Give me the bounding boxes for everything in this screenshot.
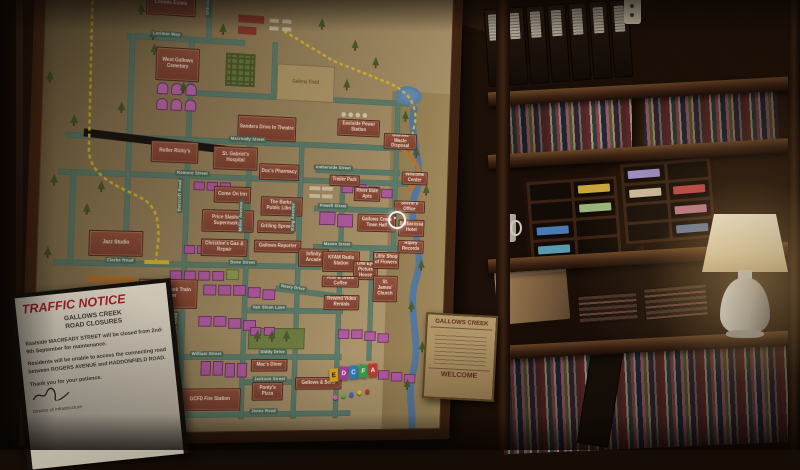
letter-tile[interactable]: D — [339, 366, 349, 380]
tile-letter: A — [371, 367, 376, 374]
map-feature — [309, 186, 320, 190]
building-name: Eastside Power Station — [339, 122, 378, 135]
map-building-label: Grilling Spree — [257, 220, 294, 233]
welcome-flyer-smallprint — [433, 332, 487, 367]
map-feature — [282, 19, 291, 23]
map-feature — [225, 53, 256, 88]
map-house — [377, 333, 389, 342]
building-name: Ripley Records — [399, 241, 422, 252]
street-name-label: Van Sloan Lane — [251, 305, 287, 312]
street-name: Lorimer Way — [153, 30, 180, 37]
map-feature — [238, 26, 257, 35]
welcome-flyer[interactable]: GALLOWS CREEK WELCOME — [422, 312, 498, 402]
street-name-label: Bone Street — [228, 260, 257, 267]
binder — [546, 3, 570, 82]
tile-letter: E — [332, 372, 336, 379]
building-name: Sanders Drive In Theatre — [240, 125, 294, 133]
map-building-label: Rise & Shine Coffee — [322, 276, 360, 288]
street-name-label: William Street — [190, 351, 224, 357]
killer-frequency-room-scene: Loomis EstateWest Gallows CemetaryRoller… — [0, 0, 800, 450]
lamp-shade — [702, 214, 788, 272]
tree-icon — [408, 301, 415, 310]
tape-slot — [531, 201, 573, 220]
map-feature — [356, 113, 361, 118]
letter-tile[interactable]: A — [368, 363, 377, 377]
map-building-label: Christine's Gas & Repair — [201, 238, 248, 257]
map-feature — [270, 18, 279, 22]
street-name: Bone Street — [230, 260, 255, 265]
map-house — [212, 271, 224, 281]
building-name: Jazz Studio — [102, 240, 129, 246]
street-name-label: Diddy Drive — [259, 349, 287, 355]
tree-icon — [83, 203, 91, 212]
map-building-label: Gallows Waste Disposal — [384, 133, 417, 150]
building-name: Christine's Gas & Repair — [203, 242, 246, 254]
map-building-label: Ponty's Pizza — [252, 382, 284, 401]
tape-slot — [530, 182, 572, 201]
tree-icon — [343, 79, 350, 88]
building-name: GCFD Fire Station — [190, 397, 230, 403]
map-pin — [341, 393, 346, 398]
street-name-label: King Avenue — [290, 201, 297, 233]
binder — [567, 2, 591, 81]
lamp-glow — [647, 177, 800, 387]
street-name: Jackson Street — [254, 376, 285, 381]
map-house — [391, 372, 403, 381]
map-feature — [282, 27, 291, 31]
map-house — [218, 285, 231, 296]
lamp-foot — [726, 330, 764, 338]
tree-icon — [44, 246, 52, 255]
building-name: St. Gabriel's Hospital — [215, 152, 256, 165]
street-name: Romero Street — [177, 170, 208, 176]
tape-cartridge — [577, 183, 610, 193]
tree-icon — [97, 180, 105, 189]
table-lamp — [692, 212, 800, 344]
street-name: King Avenue — [290, 203, 295, 231]
building-name: Gallows Reporter — [259, 243, 297, 249]
map-feature — [363, 113, 368, 118]
letter-tile[interactable]: C — [349, 365, 358, 379]
letter-tile[interactable]: E — [329, 368, 339, 382]
building-name: Roller Ricky's — [159, 149, 190, 156]
street-name: Macready Street — [231, 136, 265, 142]
building-name: Doc's Pharmacy — [261, 169, 296, 176]
tile-letter: F — [361, 368, 365, 375]
tree-icon — [254, 330, 262, 339]
street-name: Van Sloan Lane — [253, 305, 285, 310]
map-building-label: Rewind Video Rentals — [323, 295, 359, 311]
map-house — [156, 98, 168, 110]
tree-icon — [404, 379, 411, 388]
map-road — [53, 259, 321, 270]
map-feature — [238, 14, 264, 23]
map-feature — [322, 194, 333, 198]
map-house — [381, 189, 393, 199]
street-name-label: Clarke Road — [105, 257, 136, 264]
map-house — [213, 316, 226, 327]
map-house — [200, 361, 211, 376]
building-name: Gallows Waste Disposal — [385, 133, 415, 150]
street-name: Diddy Drive — [260, 349, 284, 354]
map-house — [226, 269, 239, 280]
map-house — [225, 363, 236, 378]
street-name-label: Miller Avenue — [238, 199, 245, 233]
crosshair-cursor — [388, 211, 406, 229]
tape-cartridge — [538, 244, 571, 254]
map-feature — [395, 85, 422, 105]
tape-cartridge — [537, 225, 570, 235]
tape-cartridge — [579, 203, 612, 213]
map-feature — [341, 112, 346, 117]
tape-stack — [577, 292, 639, 324]
map-building-label: Doc's Pharmacy — [259, 163, 300, 181]
street-name: Jones Road — [251, 408, 276, 413]
map-house — [185, 99, 197, 111]
bookcase — [496, 0, 800, 450]
tape-slot — [576, 218, 618, 237]
binder — [525, 5, 549, 84]
map-feature — [269, 26, 278, 30]
tree-icon — [402, 110, 409, 119]
street-name-label: Jackson Street — [252, 376, 287, 382]
tree-icon — [50, 173, 58, 182]
street-name: Barcroft Road — [177, 180, 183, 212]
binder — [588, 1, 612, 80]
street-name: Powell Street — [320, 203, 347, 209]
street-name: Mason Street — [324, 241, 351, 246]
map-house — [351, 329, 363, 339]
map-pin — [357, 390, 362, 395]
map-building-label: Gallows Reporter — [254, 240, 302, 254]
map-building-label: Eastside Power Station — [337, 118, 380, 137]
map-building-label: St. Gabriel's Hospital — [213, 146, 258, 171]
map-house — [319, 211, 336, 225]
map-house — [338, 329, 350, 339]
map-house — [228, 318, 241, 329]
street-name: William Street — [192, 351, 222, 356]
map-building-label: Jazz Studio — [88, 230, 143, 257]
building-name: Loomis Estate — [155, 0, 188, 8]
bookcase-side-left — [496, 0, 510, 450]
building-name: Galens Field — [292, 80, 319, 87]
tile-letter: D — [341, 370, 346, 377]
building-name: Welcome Center — [403, 173, 426, 185]
tape-slot — [574, 198, 616, 217]
map-road — [67, 169, 76, 264]
tape-slot — [573, 179, 615, 198]
building-name: Little Shop of Flowers — [374, 255, 397, 266]
tree-icon — [318, 18, 325, 27]
map-house — [262, 289, 275, 300]
street-name-label: Jones Road — [249, 408, 277, 415]
map-house — [364, 331, 376, 341]
street-name: Amberside Street — [316, 164, 351, 170]
street-name: Miller Avenue — [238, 201, 244, 231]
tree-icon — [118, 101, 126, 110]
tree-icon — [418, 259, 425, 268]
map-building-label: Ripley Records — [398, 240, 424, 254]
map-pin — [349, 392, 354, 397]
map-house — [203, 285, 216, 296]
map-house — [378, 370, 390, 380]
tree-icon — [352, 39, 359, 48]
welcome-flyer-footer: WELCOME — [428, 367, 490, 380]
map-feature — [309, 194, 320, 198]
map-house — [170, 99, 182, 111]
map-building-label: West Gallows Cemetary — [155, 46, 200, 82]
building-name: Ponty's Pizza — [254, 386, 282, 397]
tape-slot — [532, 221, 574, 240]
tree-icon — [219, 23, 227, 32]
wall-plate — [624, 0, 641, 24]
building-name: Mac's Diner — [256, 362, 282, 368]
street-name-label: Barcroft Road — [177, 178, 184, 213]
map-building-label: Welcome Center — [402, 171, 428, 185]
map-house — [184, 245, 196, 254]
map-house — [213, 361, 224, 376]
map-house — [237, 363, 248, 378]
street-name-label: Mason Street — [322, 241, 352, 248]
map-house — [193, 181, 205, 190]
building-name: Come On Inn — [218, 192, 247, 199]
map-feature — [348, 112, 353, 117]
map-building-label: Trailer Park — [329, 174, 360, 186]
map-feature — [322, 187, 333, 191]
tile-letter: C — [351, 369, 356, 376]
tree-icon — [46, 70, 54, 79]
tree-icon — [137, 3, 145, 12]
map-road — [127, 33, 245, 46]
map-building-label: Mac's Diner — [251, 359, 288, 372]
building-name: West Gallows Cemetary — [158, 58, 198, 72]
tree-icon — [423, 184, 430, 193]
building-name: St. James' Church — [374, 281, 395, 298]
map-building-label: Loomis Estate — [146, 0, 196, 17]
map-building-label: River Side Apts — [354, 187, 381, 202]
map-house — [248, 287, 261, 298]
building-name: Rise & Shine Coffee — [323, 276, 357, 287]
map-pin — [365, 389, 370, 394]
map-building-label: Roller Ricky's — [151, 140, 199, 164]
map-building-label: Price Slashers Supermarket — [201, 209, 254, 233]
welcome-flyer-title: GALLOWS CREEK — [431, 318, 493, 330]
letter-tile[interactable]: F — [358, 364, 368, 378]
building-name: Trailer Park — [332, 178, 356, 184]
tree-icon — [268, 330, 276, 339]
map-house — [233, 285, 246, 296]
map-building-label: Come On Inn — [214, 186, 252, 204]
map-house — [337, 214, 353, 228]
building-name: Grilling Spree — [261, 224, 291, 230]
map-building-label: St. James' Church — [372, 276, 397, 303]
map-building-label: GCFD Fire Station — [178, 388, 241, 411]
tree-icon — [283, 330, 291, 339]
traffic-notice-paper: TRAFFIC NOTICE GALLOWS CREEK ROAD CLOSUR… — [15, 283, 184, 470]
tree-icon — [70, 114, 78, 123]
traffic-notice-poster[interactable]: TRAFFIC NOTICE GALLOWS CREEK ROAD CLOSUR… — [9, 278, 189, 470]
map-building-label: Little Shop of Flowers — [373, 252, 400, 270]
street-name: Oldridge Road — [205, 0, 211, 15]
map-building-label: Galens Field — [276, 63, 335, 103]
street-name: Clarke Road — [107, 257, 134, 262]
building-name: Price Slashers Supermarket — [203, 215, 252, 227]
tree-icon — [372, 57, 379, 66]
tree-icon — [180, 81, 188, 90]
map-house — [198, 271, 211, 281]
building-name: River Side Apts — [356, 188, 379, 200]
map-house — [157, 82, 169, 94]
building-name: Rewind Video Rentals — [325, 297, 357, 308]
map-house — [198, 316, 211, 327]
